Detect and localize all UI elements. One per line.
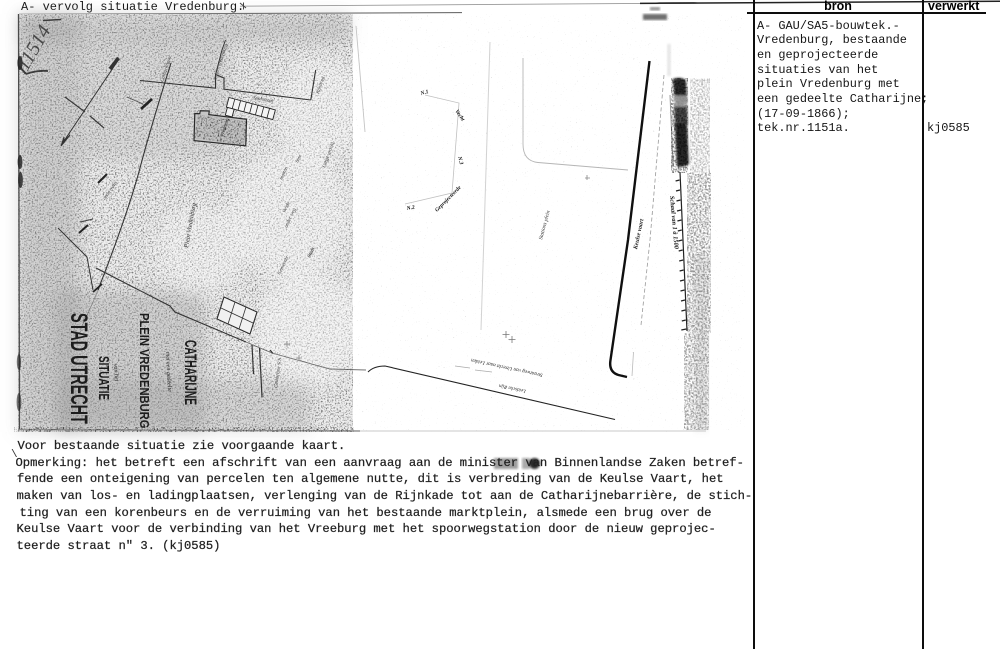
svg-text:STAD UTRECHT: STAD UTRECHT xyxy=(65,313,92,424)
svg-text:CATHARIJNE: CATHARIJNE xyxy=(181,340,199,405)
svg-text:SITUATIE: SITUATIE xyxy=(95,356,111,400)
svg-text:PLEIN VREDENBURG: PLEIN VREDENBURG xyxy=(137,313,152,428)
svg-text:van het: van het xyxy=(112,364,119,382)
